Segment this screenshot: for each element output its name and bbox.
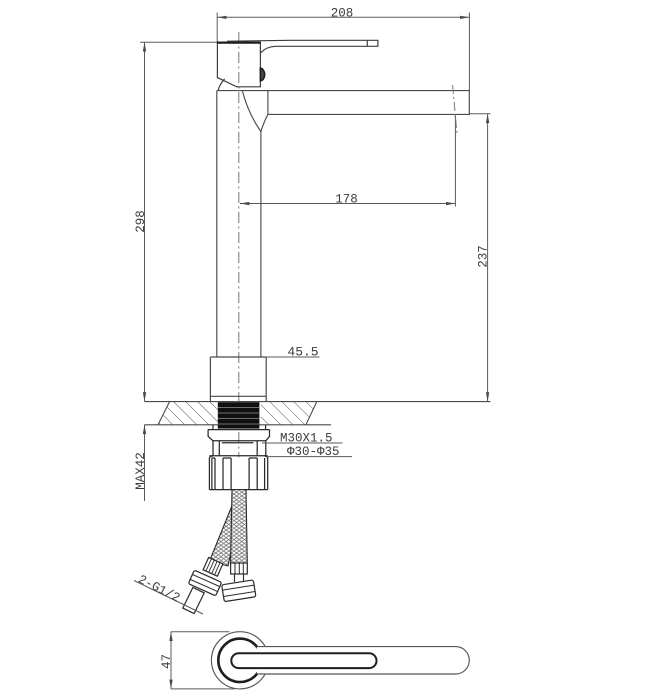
svg-text:MAX42: MAX42 bbox=[134, 452, 148, 490]
svg-text:45.5: 45.5 bbox=[287, 345, 318, 360]
svg-text:237: 237 bbox=[477, 245, 491, 268]
svg-text:M30X1.5: M30X1.5 bbox=[280, 432, 333, 446]
svg-text:47: 47 bbox=[160, 654, 174, 669]
svg-text:298: 298 bbox=[134, 210, 148, 233]
svg-text:208: 208 bbox=[331, 6, 354, 20]
svg-text:Φ30-Φ35: Φ30-Φ35 bbox=[287, 445, 340, 459]
svg-text:178: 178 bbox=[335, 193, 358, 207]
